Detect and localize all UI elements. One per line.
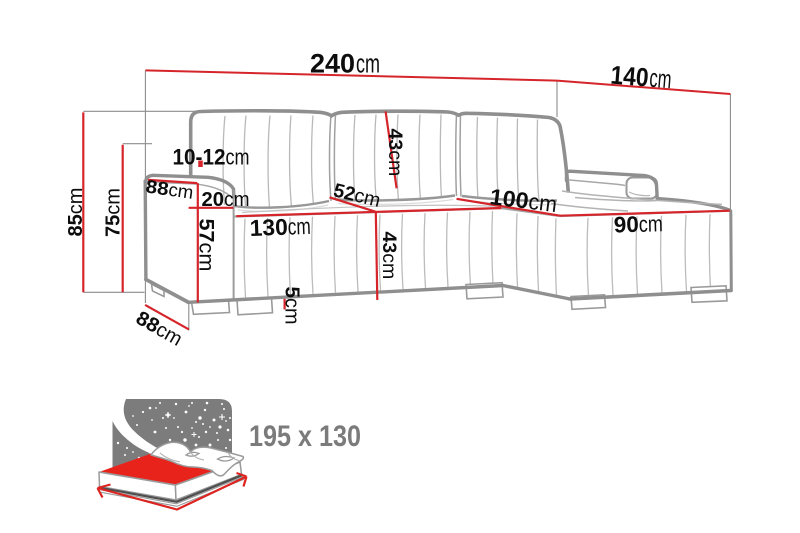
svg-text:140cm: 140cm (610, 60, 673, 95)
svg-text:90cm: 90cm (613, 211, 663, 237)
svg-text:43cm: 43cm (378, 232, 400, 280)
svg-text:85cm: 85cm (65, 188, 87, 237)
svg-text:75cm: 75cm (103, 188, 125, 237)
svg-text:57cm: 57cm (195, 219, 219, 272)
svg-text:130cm: 130cm (249, 213, 311, 241)
svg-text:43cm: 43cm (384, 129, 406, 177)
svg-text:20cm: 20cm (202, 188, 250, 211)
svg-text:240cm: 240cm (310, 49, 380, 79)
svg-text:10-12cm: 10-12cm (173, 145, 250, 170)
svg-text:195 x 130: 195 x 130 (249, 420, 361, 453)
svg-text:5cm: 5cm (281, 287, 304, 325)
